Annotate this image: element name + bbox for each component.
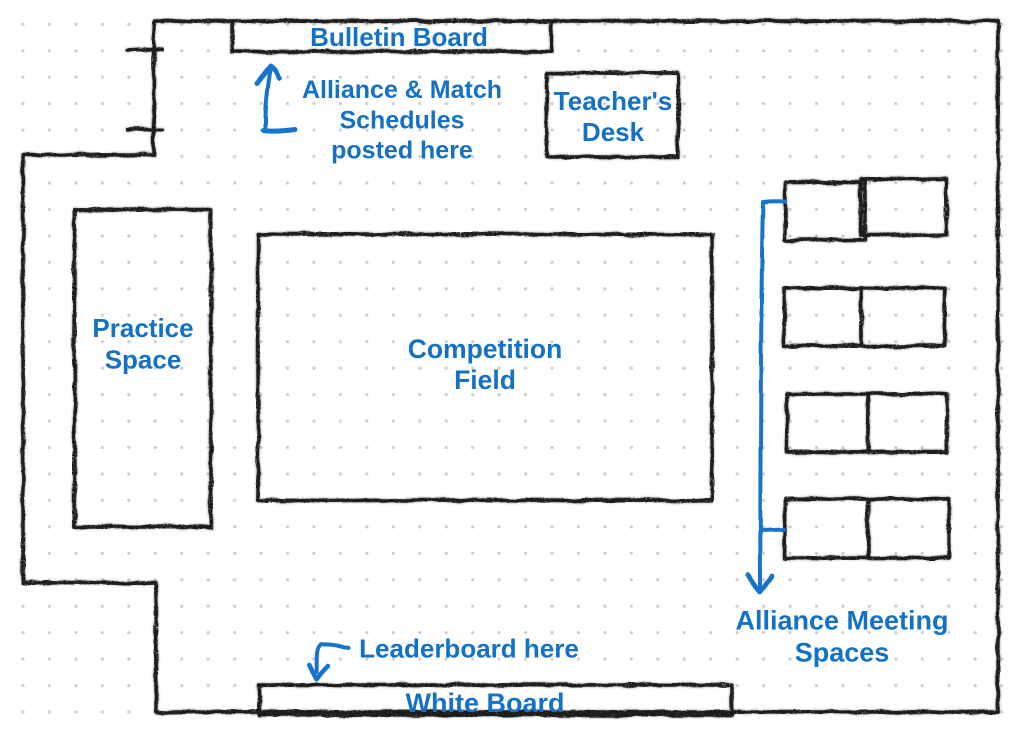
svg-text:Schedules: Schedules xyxy=(339,107,464,135)
svg-text:White Board: White Board xyxy=(406,688,565,718)
svg-text:posted here: posted here xyxy=(331,137,473,165)
svg-text:Teacher's: Teacher's xyxy=(554,86,672,116)
svg-text:Spaces: Spaces xyxy=(795,638,890,668)
svg-text:Leaderboard here: Leaderboard here xyxy=(359,634,579,664)
svg-text:Alliance Meeting: Alliance Meeting xyxy=(735,606,948,636)
svg-text:Field: Field xyxy=(454,365,516,395)
svg-text:Bulletin Board: Bulletin Board xyxy=(310,22,488,52)
svg-text:Practice: Practice xyxy=(92,313,193,343)
svg-text:Desk: Desk xyxy=(582,117,645,147)
svg-text:Competition: Competition xyxy=(408,334,563,364)
svg-text:Alliance & Match: Alliance & Match xyxy=(302,76,502,104)
svg-text:Space: Space xyxy=(105,345,182,375)
